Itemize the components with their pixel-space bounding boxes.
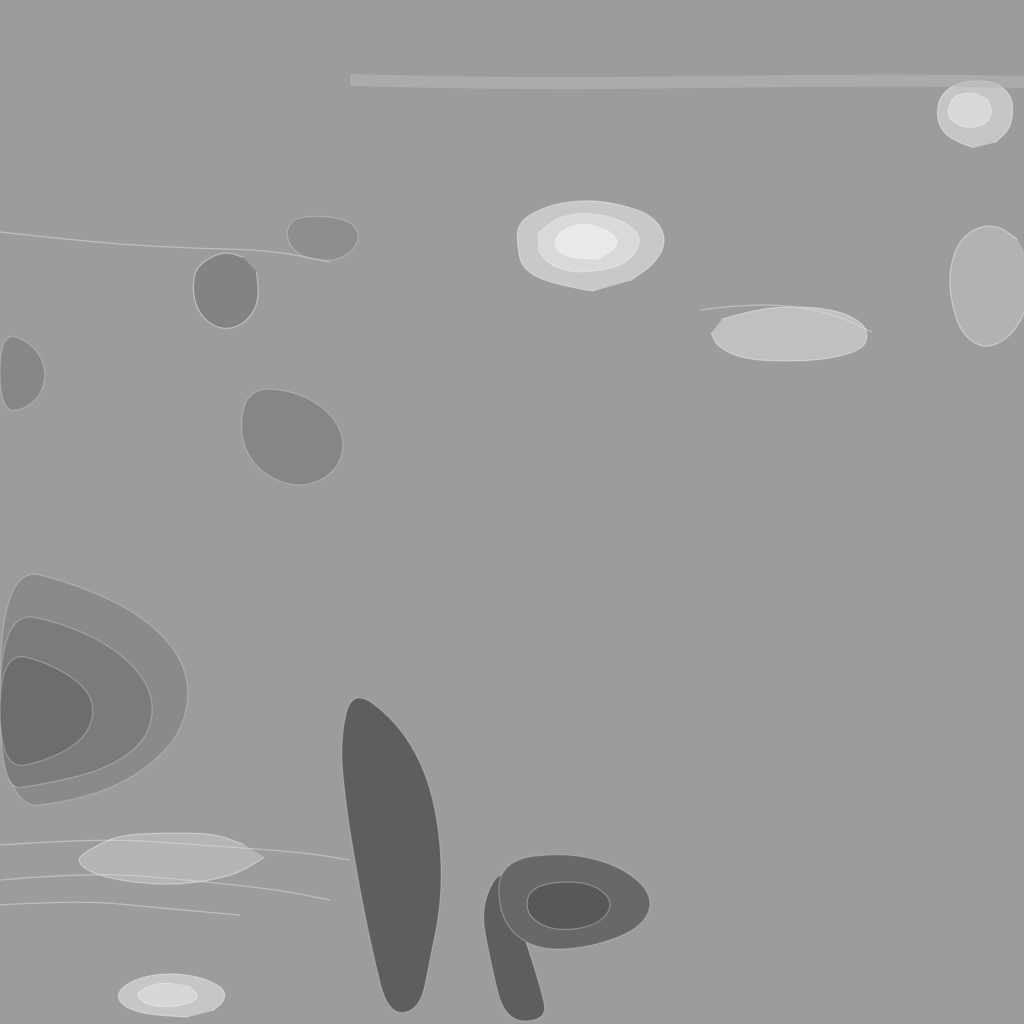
map-canvas[interactable] <box>0 0 1024 1024</box>
roadside-light-strip <box>350 80 1024 83</box>
topographic-map <box>0 0 1024 1024</box>
light-terrain-patch <box>950 226 1024 346</box>
terrain-layer <box>0 0 1024 1024</box>
light-terrain-patch <box>948 93 991 127</box>
light-terrain-patch <box>711 307 867 361</box>
light-terrain-patch <box>193 253 258 328</box>
dark-terrain-patch <box>527 882 610 930</box>
